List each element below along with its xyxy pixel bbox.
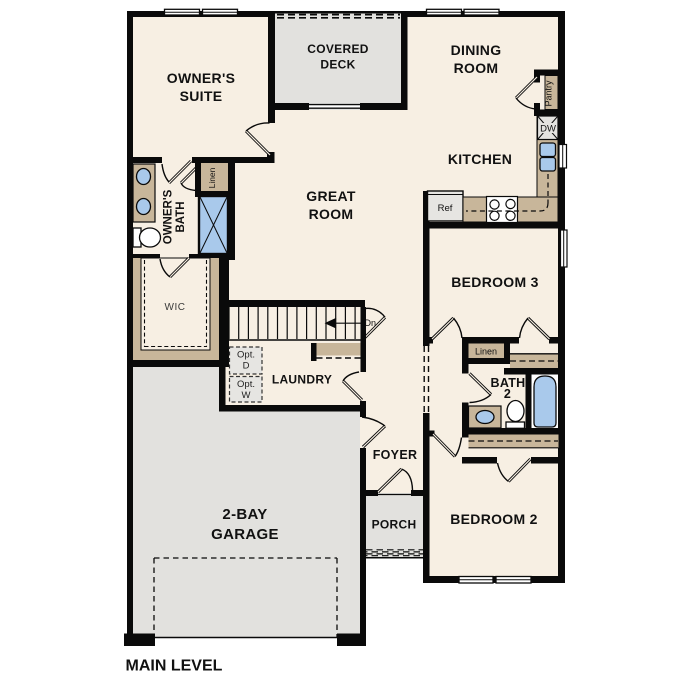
svg-text:MAIN LEVEL: MAIN LEVEL [126,658,223,675]
svg-text:BEDROOM 3: BEDROOM 3 [451,274,539,290]
svg-text:WIC: WIC [165,302,186,313]
svg-text:ROOM: ROOM [454,60,499,76]
svg-text:Opt.: Opt. [237,350,255,361]
svg-text:BEDROOM 2: BEDROOM 2 [450,511,538,527]
svg-text:PORCH: PORCH [372,518,417,532]
svg-text:W: W [242,390,251,401]
svg-text:LAUNDRY: LAUNDRY [272,373,332,387]
svg-text:Linen: Linen [475,347,497,357]
svg-text:Ref: Ref [438,203,453,214]
svg-text:2-BAY: 2-BAY [222,506,267,523]
svg-text:ROOM: ROOM [309,206,354,222]
svg-text:FOYER: FOYER [373,448,418,462]
svg-text:2: 2 [504,387,511,401]
svg-text:Opt.: Opt. [237,379,255,390]
svg-text:Pantry: Pantry [544,80,554,107]
svg-text:GARAGE: GARAGE [211,526,279,543]
svg-text:COVERED: COVERED [307,42,368,56]
svg-text:OWNER'S: OWNER'S [163,189,175,244]
svg-text:Linen: Linen [207,167,217,188]
svg-text:Dn: Dn [365,318,377,328]
svg-text:BATH: BATH [175,201,187,232]
svg-text:DW: DW [540,124,556,135]
svg-text:DINING: DINING [451,42,502,58]
svg-text:OWNER'S: OWNER'S [167,70,235,86]
svg-text:KITCHEN: KITCHEN [448,151,512,167]
svg-text:D: D [243,361,250,372]
svg-text:GREAT: GREAT [306,188,356,204]
svg-text:SUITE: SUITE [180,88,223,104]
svg-text:DECK: DECK [320,58,355,72]
